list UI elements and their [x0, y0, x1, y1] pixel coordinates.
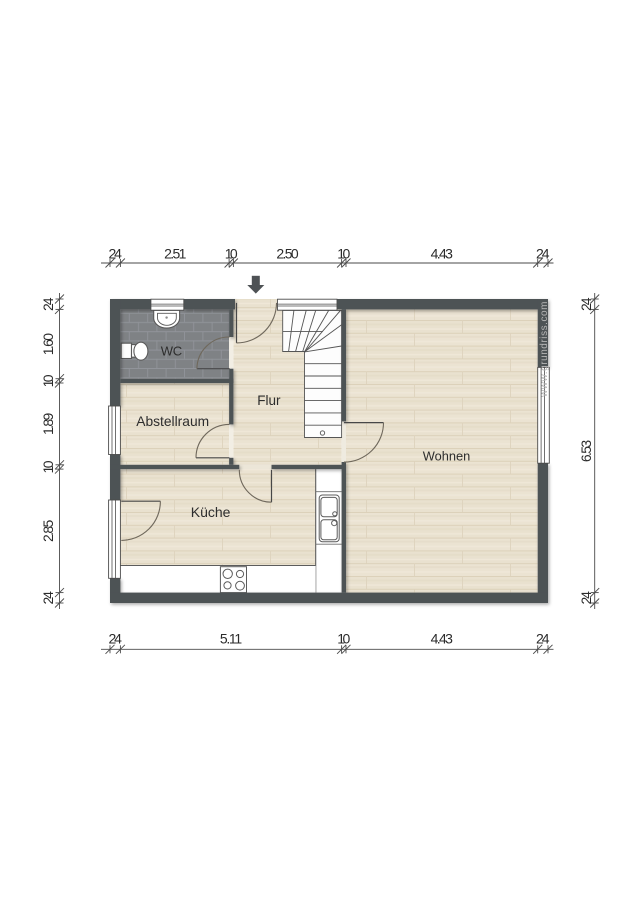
- svg-text:24: 24: [578, 591, 594, 605]
- svg-text:24: 24: [536, 246, 550, 262]
- svg-text:24: 24: [536, 631, 550, 647]
- svg-text:WC: WC: [161, 343, 182, 358]
- svg-text:2.85: 2.85: [40, 520, 56, 543]
- svg-text:24: 24: [578, 297, 594, 311]
- svg-text:24: 24: [40, 591, 56, 605]
- svg-text:10: 10: [337, 246, 350, 262]
- svg-text:24: 24: [108, 631, 122, 647]
- svg-text:10: 10: [337, 631, 350, 647]
- svg-text:24: 24: [108, 246, 122, 262]
- svg-text:10: 10: [40, 460, 56, 473]
- svg-text:2.50: 2.50: [276, 246, 299, 262]
- svg-text:10: 10: [225, 246, 238, 262]
- svg-text:Wohnen: Wohnen: [423, 448, 470, 463]
- svg-text:Küche: Küche: [191, 504, 231, 520]
- svg-text:5.11: 5.11: [220, 631, 243, 647]
- svg-text:www.grundriss.com: www.grundriss.com: [539, 301, 550, 398]
- svg-text:4.43: 4.43: [431, 246, 454, 262]
- svg-text:10: 10: [40, 374, 56, 387]
- svg-text:Abstellraum: Abstellraum: [136, 414, 209, 429]
- svg-text:24: 24: [40, 297, 56, 311]
- svg-text:6.53: 6.53: [578, 440, 594, 463]
- svg-text:Flur: Flur: [257, 393, 281, 408]
- svg-text:1.60: 1.60: [40, 333, 56, 356]
- svg-text:2.51: 2.51: [164, 246, 187, 262]
- svg-text:1.89: 1.89: [40, 413, 56, 436]
- svg-text:4.43: 4.43: [431, 631, 454, 647]
